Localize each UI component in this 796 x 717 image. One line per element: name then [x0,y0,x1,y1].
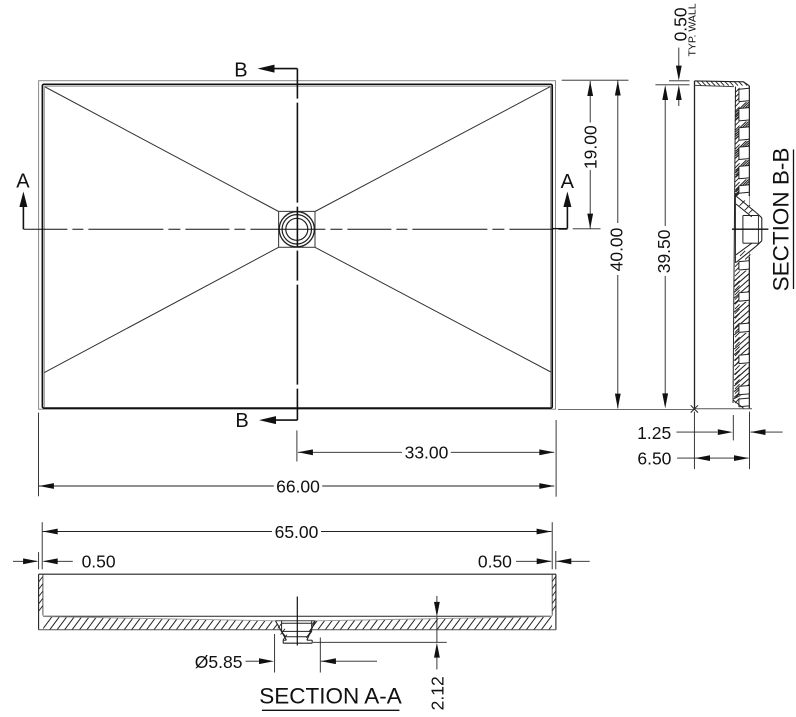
svg-text:SECTION A-A: SECTION A-A [259,683,402,708]
svg-text:19.00: 19.00 [580,125,600,169]
svg-text:1.25: 1.25 [637,423,671,443]
svg-text:65.00: 65.00 [275,522,319,542]
svg-text:2.12: 2.12 [427,676,447,710]
svg-text:B: B [235,410,248,432]
svg-text:B: B [234,59,247,81]
svg-text:A: A [16,170,30,192]
svg-text:Ø5.85: Ø5.85 [195,652,243,672]
svg-text:40.00: 40.00 [606,227,626,271]
svg-text:66.00: 66.00 [276,476,320,496]
svg-text:SECTION B-B: SECTION B-B [769,148,794,292]
svg-text:6.50: 6.50 [637,448,671,468]
svg-text:33.00: 33.00 [405,443,449,463]
svg-text:0.50: 0.50 [478,552,512,572]
svg-text:TYP. WALL: TYP. WALL [687,3,699,56]
svg-text:0.50: 0.50 [82,552,116,572]
svg-text:A: A [561,171,575,193]
svg-text:39.50: 39.50 [654,229,674,273]
